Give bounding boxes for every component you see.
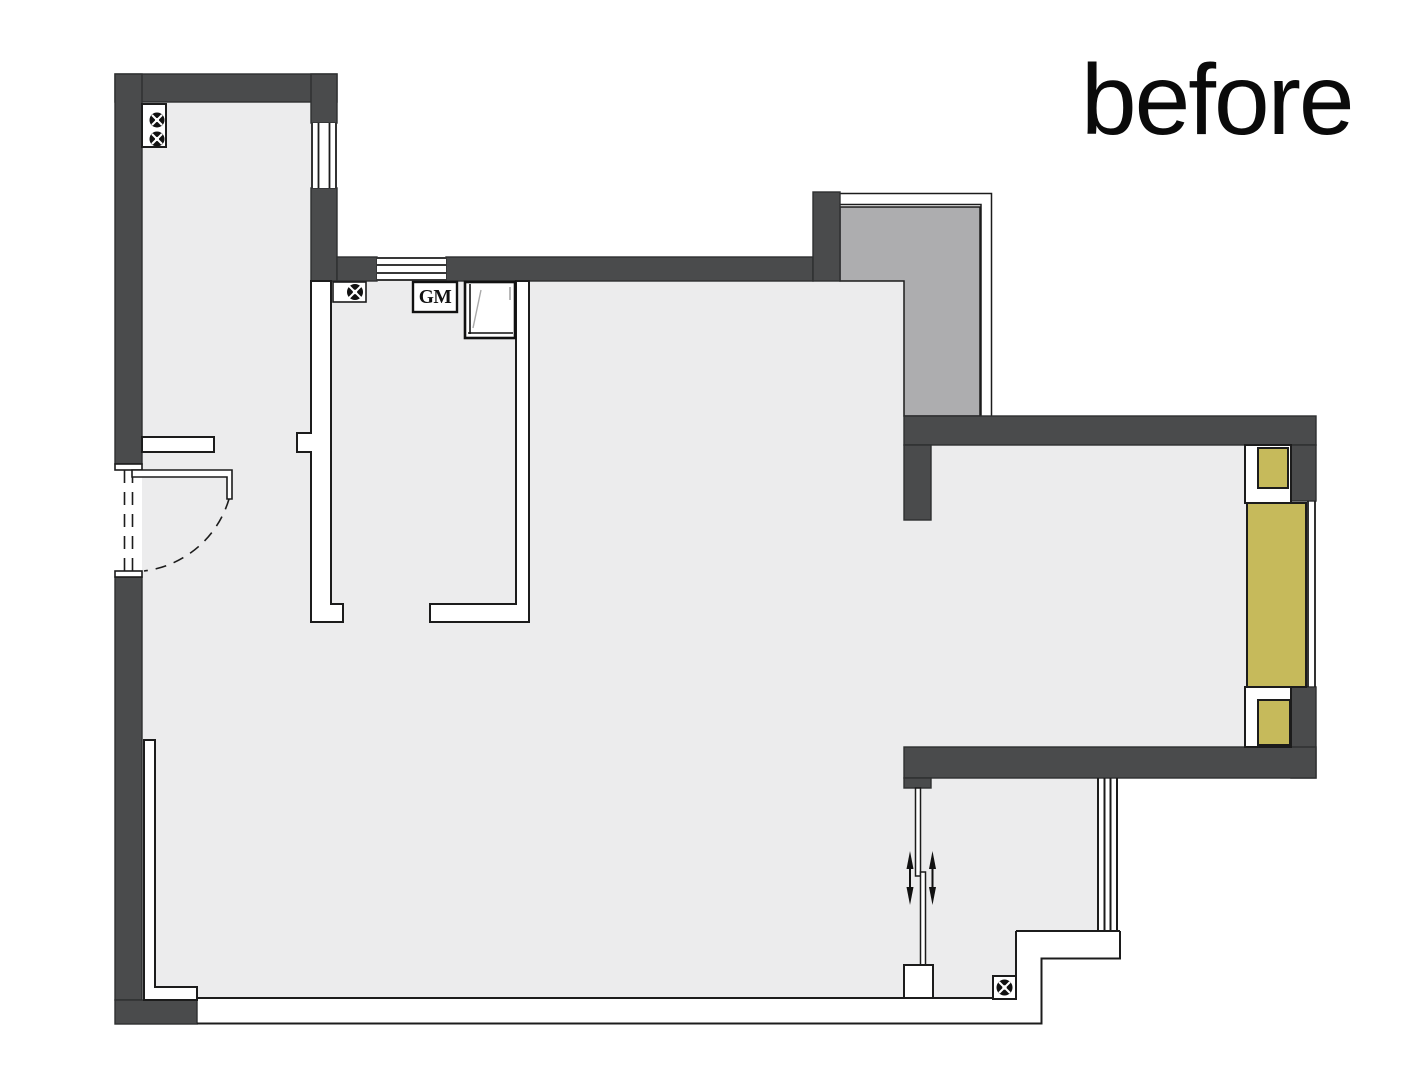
svg-text:GM: GM: [419, 287, 452, 308]
svg-text:before: before: [1081, 44, 1353, 156]
